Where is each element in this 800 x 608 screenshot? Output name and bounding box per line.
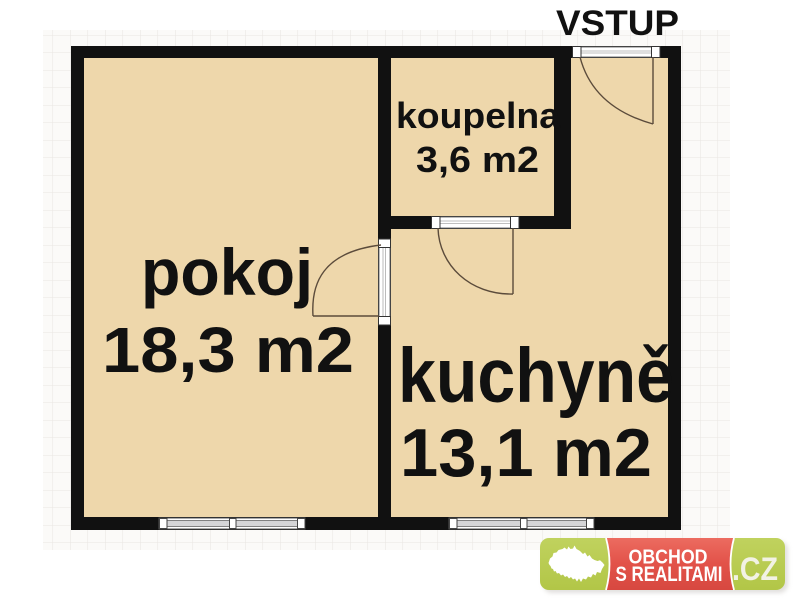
svg-text:S REALITAMI: S REALITAMI: [616, 562, 723, 586]
svg-text:.CZ: .CZ: [732, 551, 778, 587]
svg-text:3,6 m2: 3,6 m2: [416, 139, 539, 180]
svg-text:kuchyně: kuchyně: [398, 333, 674, 419]
svg-text:18,3 m2: 18,3 m2: [102, 314, 354, 386]
svg-text:VSTUP: VSTUP: [556, 4, 679, 43]
svg-text:13,1 m2: 13,1 m2: [400, 415, 652, 491]
svg-text:koupelna: koupelna: [396, 95, 561, 136]
svg-text:pokoj: pokoj: [141, 235, 313, 309]
